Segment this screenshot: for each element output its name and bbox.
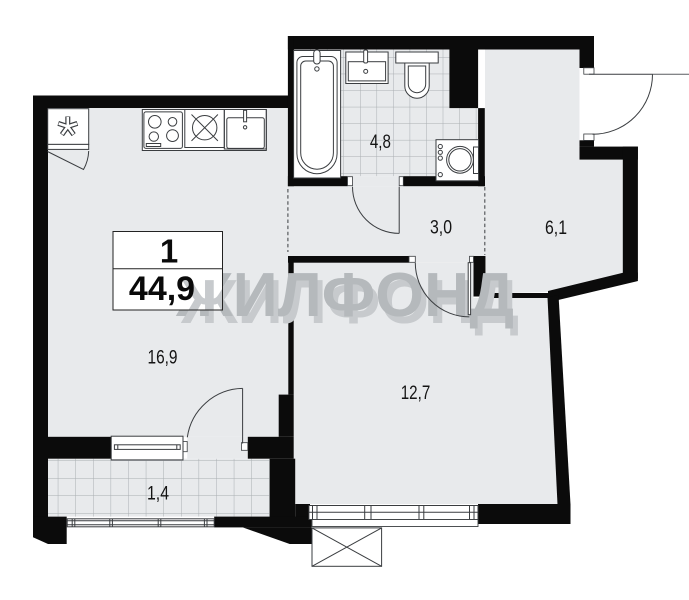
- svg-text:6,1: 6,1: [545, 218, 567, 239]
- svg-text:44,9: 44,9: [129, 270, 195, 308]
- svg-text:3,0: 3,0: [430, 218, 452, 239]
- svg-text:16,9: 16,9: [148, 348, 178, 369]
- svg-text:1,4: 1,4: [147, 484, 169, 505]
- svg-text:ЖИЛФОНД: ЖИЛФОНД: [175, 261, 514, 330]
- svg-text:4,8: 4,8: [370, 132, 391, 153]
- svg-text:1: 1: [160, 233, 178, 270]
- svg-text:12,7: 12,7: [401, 383, 431, 404]
